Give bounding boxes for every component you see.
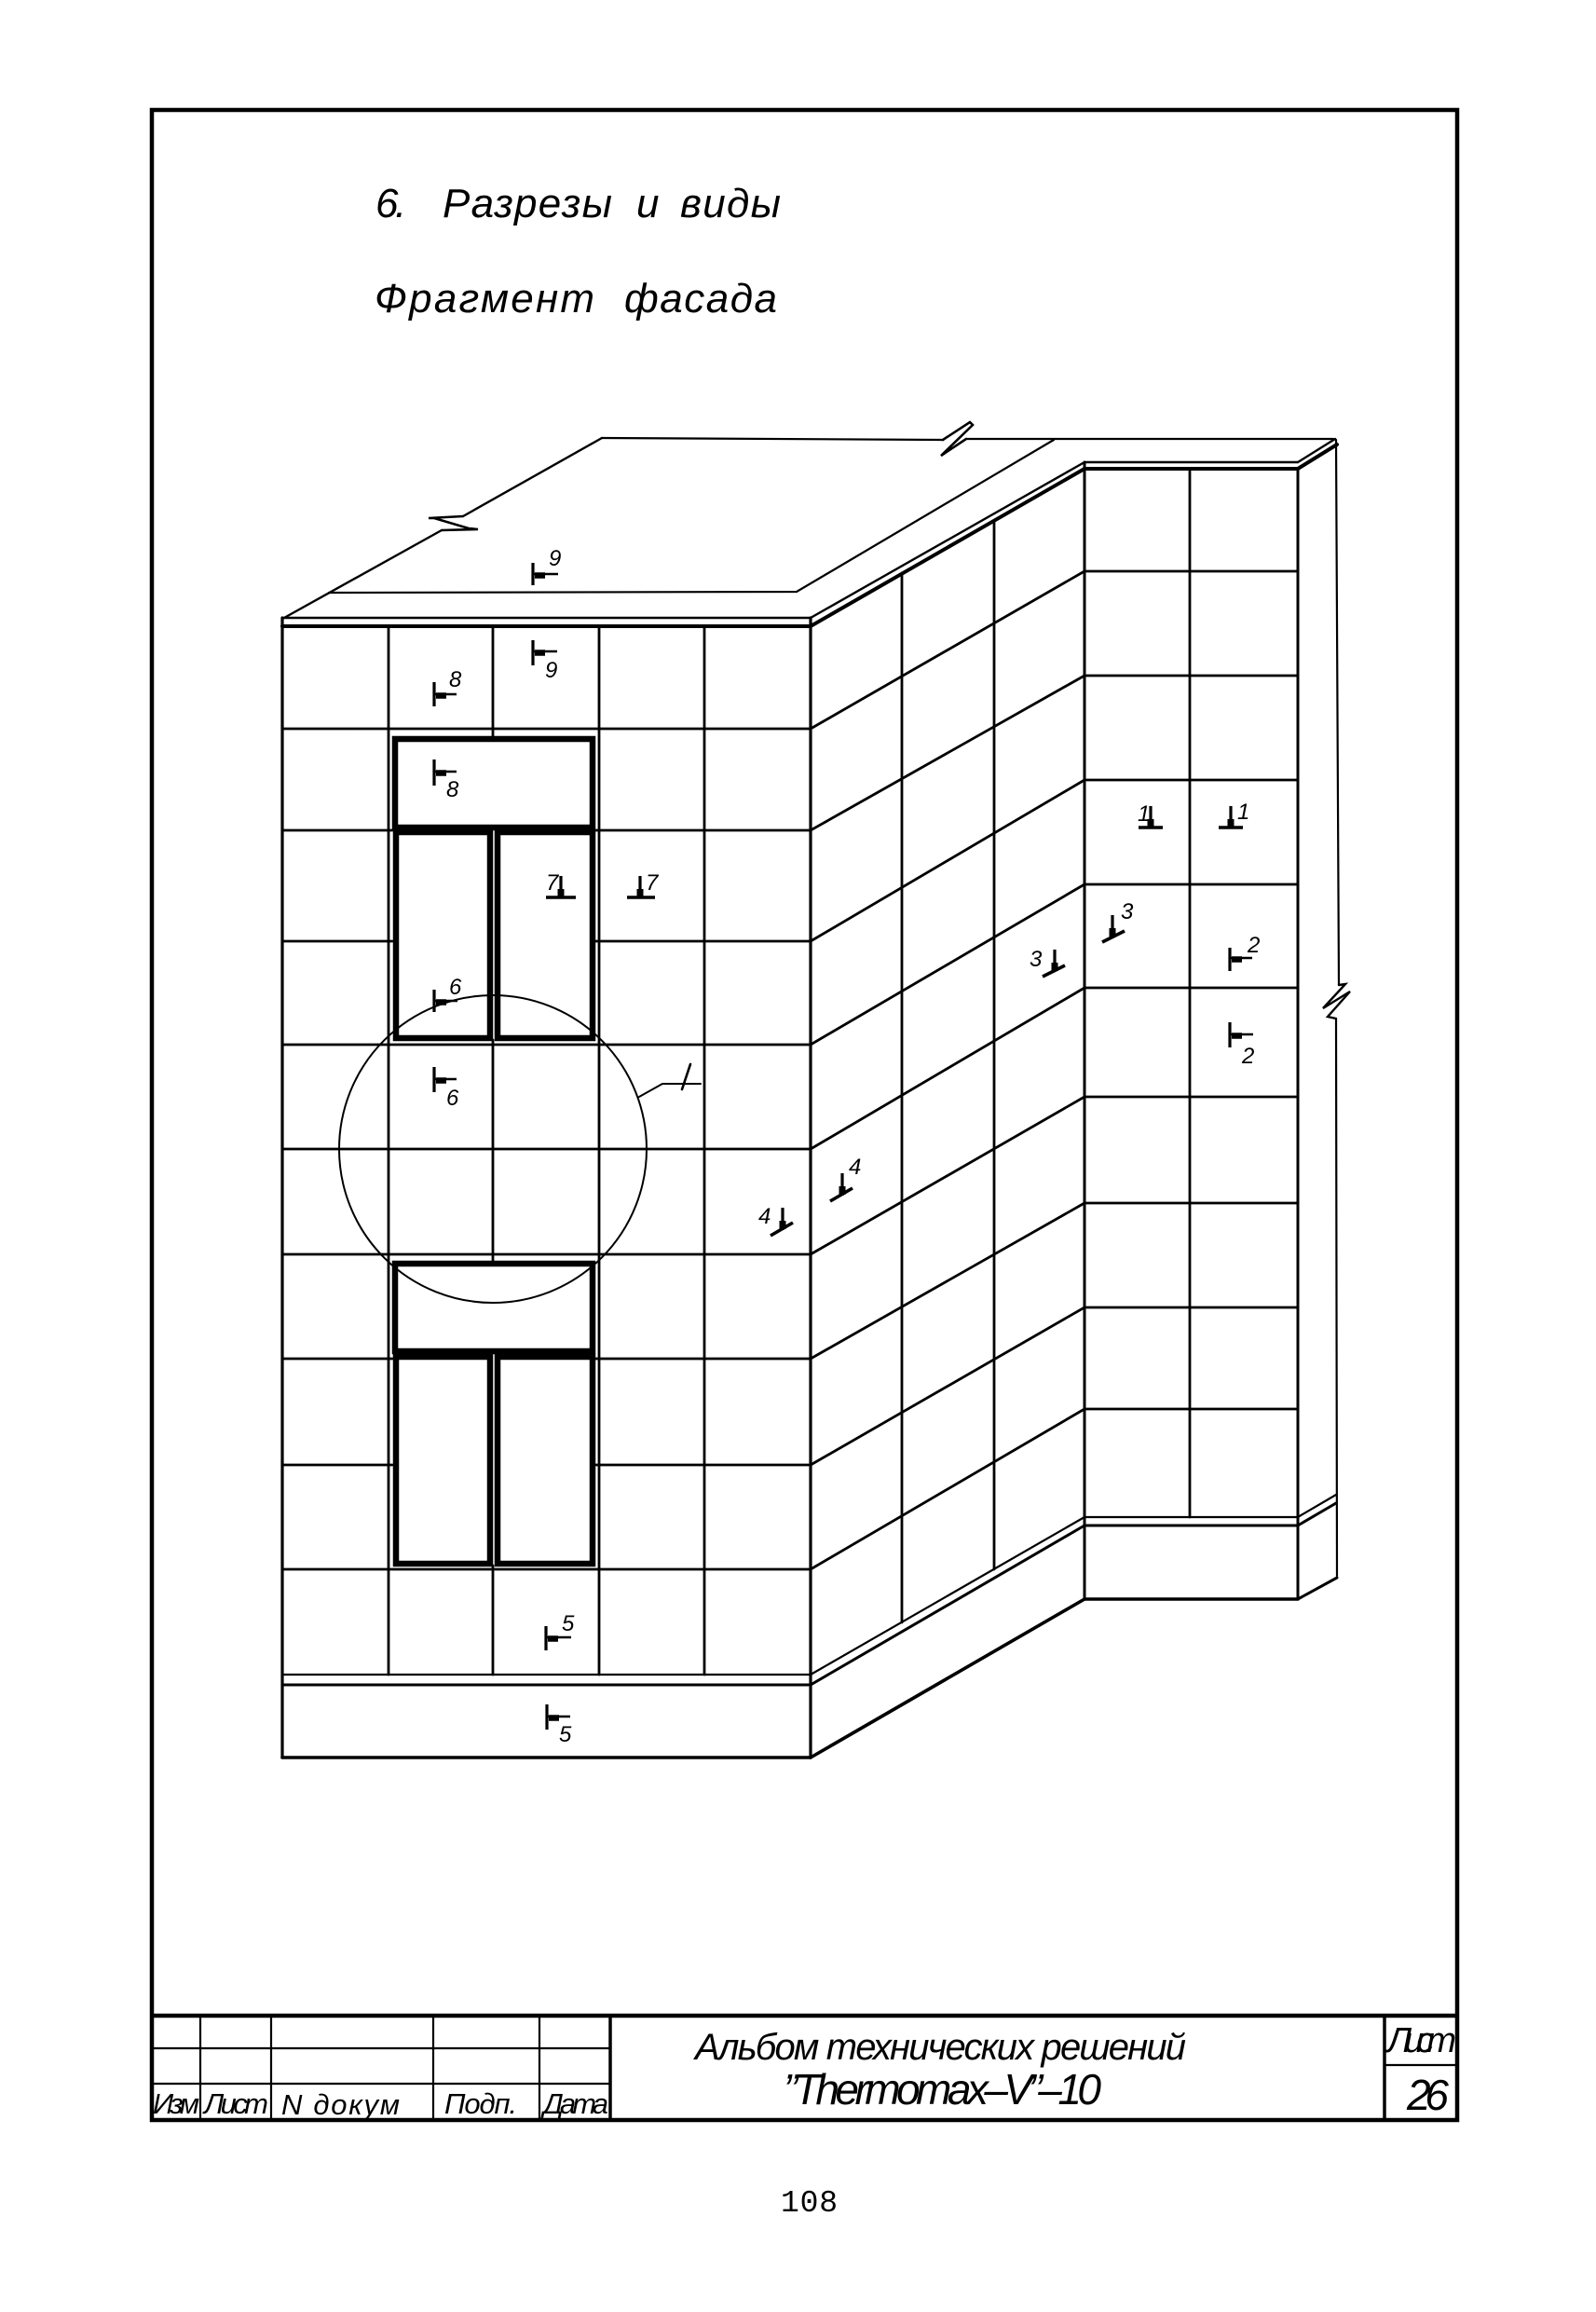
svg-text:и: и bbox=[636, 181, 659, 226]
svg-text:9: 9 bbox=[549, 546, 561, 571]
svg-text:6: 6 bbox=[449, 975, 462, 1000]
svg-text:Альбом технических решений: Альбом технических решений bbox=[693, 2027, 1186, 2068]
svg-text:3: 3 bbox=[1121, 899, 1134, 924]
svg-text:4: 4 bbox=[758, 1204, 771, 1229]
svg-text:4: 4 bbox=[849, 1155, 861, 1180]
svg-text:5: 5 bbox=[559, 1722, 572, 1747]
svg-text:виды: виды bbox=[680, 181, 781, 226]
svg-text:.: . bbox=[395, 181, 406, 226]
svg-text:1: 1 bbox=[1237, 800, 1249, 825]
svg-text:Изм: Изм bbox=[153, 2087, 199, 2120]
svg-text:Дата: Дата bbox=[540, 2087, 608, 2120]
svg-text:5: 5 bbox=[562, 1611, 575, 1636]
svg-text:2: 2 bbox=[1241, 1044, 1254, 1069]
svg-text:1: 1 bbox=[1138, 801, 1150, 827]
svg-text:Лист: Лист bbox=[1385, 2021, 1456, 2060]
svg-text:”Thermomax–V”–10: ”Thermomax–V”–10 bbox=[784, 2065, 1101, 2114]
svg-text:фасада: фасада bbox=[624, 276, 777, 321]
svg-text:8: 8 bbox=[446, 777, 459, 802]
svg-text:Лист: Лист bbox=[202, 2087, 268, 2120]
svg-text:7: 7 bbox=[646, 870, 660, 896]
svg-text:Разрезы: Разрезы bbox=[443, 181, 612, 226]
svg-text:Подп.: Подп. bbox=[444, 2087, 517, 2120]
svg-text:8: 8 bbox=[449, 667, 462, 692]
svg-text:26: 26 bbox=[1406, 2071, 1449, 2119]
svg-text:9: 9 bbox=[545, 658, 557, 683]
svg-text:7: 7 bbox=[546, 870, 560, 896]
svg-text:3: 3 bbox=[1030, 947, 1043, 972]
svg-text:6: 6 bbox=[446, 1086, 459, 1111]
svg-text:N докум: N докум bbox=[281, 2088, 400, 2121]
svg-text:108: 108 bbox=[781, 2186, 838, 2221]
svg-text:2: 2 bbox=[1247, 933, 1260, 958]
